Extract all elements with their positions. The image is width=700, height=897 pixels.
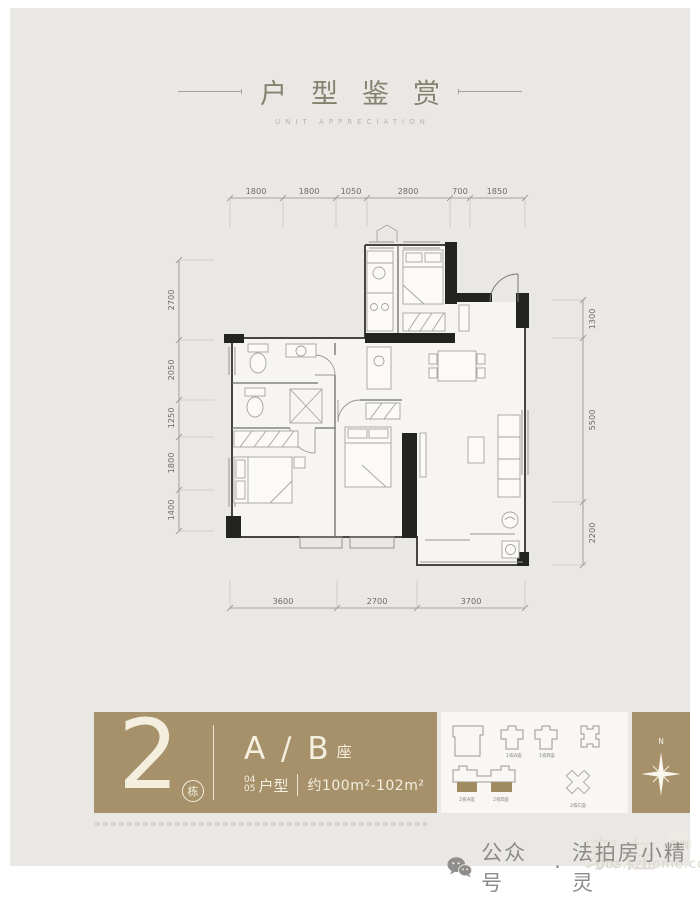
highlighted-buildings (457, 782, 512, 792)
block-name: A / B (244, 734, 332, 765)
dim-label: 5500 (587, 410, 597, 431)
area-range: 约100m²-102m² (307, 775, 424, 795)
entry-door (490, 274, 518, 302)
building-label: 1栋B座 (539, 752, 555, 759)
dim-label: 3600 (273, 596, 294, 606)
compass-icon: N (632, 712, 690, 813)
caption-account-name: 法拍房小精灵 (572, 837, 700, 897)
unit-info-block: 2 栋 A / B 座 04 05 户型 约100m²-102m² (94, 712, 437, 813)
wechat-icon (447, 855, 472, 879)
compass-block: N (632, 712, 690, 813)
site-plan-panel: 1栋A座 1栋B座 2栋A座 2栋B座 2栋C座 (441, 712, 628, 813)
floor-plan: 1800 1800 1050 2800 700 1850 2700 2050 1… (140, 175, 610, 635)
building-number: 2 (118, 707, 179, 805)
building-labels: 1栋A座 1栋B座 2栋A座 2栋B座 2栋C座 (459, 752, 586, 809)
unit-type-label: 户型 (258, 775, 288, 796)
page-subtitle: UNIT APPRECIATION (275, 118, 430, 126)
dim-label: 2700 (367, 596, 388, 606)
dim-label: 1300 (587, 309, 597, 330)
dim-label: 1400 (166, 500, 176, 521)
fine-print-line (95, 822, 427, 826)
dim-label: 2700 (166, 290, 176, 311)
dim-label: 1800 (166, 453, 176, 474)
footer-caption: 公众号 · 法拍房小精灵 (447, 837, 700, 897)
dim-label: 3700 (461, 596, 482, 606)
title-decor-line-left (178, 91, 242, 92)
dim-label: 1800 (299, 186, 320, 196)
unit-number-bottom: 05 (244, 785, 255, 794)
dim-label: 1800 (246, 186, 267, 196)
dim-label: 1850 (487, 186, 508, 196)
dim-label: 700 (452, 186, 468, 196)
building-suffix-badge: 栋 (182, 780, 204, 802)
dim-label: 2050 (166, 360, 176, 381)
info-band: 2 栋 A / B 座 04 05 户型 约100m²-102m² (94, 712, 690, 813)
page-title: 户型鉴赏 (260, 72, 464, 111)
caption-separator: · (554, 855, 563, 879)
compass-north-label: N (658, 737, 664, 746)
building-label: 2栋C座 (570, 802, 586, 809)
caption-prefix: 公众号 (481, 837, 545, 897)
band-divider (213, 725, 214, 800)
dim-label: 2200 (587, 523, 597, 544)
title-decor-line-right (458, 91, 522, 92)
building-label: 2栋A座 (459, 796, 475, 803)
building-label: 2栋B座 (493, 796, 509, 803)
header: 户型鉴赏 UNIT APPRECIATION (0, 72, 700, 126)
unit-divider (297, 774, 298, 796)
building-label: 1栋A座 (506, 752, 522, 759)
dim-label: 1050 (341, 186, 362, 196)
site-plan-diagram: 1栋A座 1栋B座 2栋A座 2栋B座 2栋C座 (441, 712, 628, 813)
dim-label: 2800 (398, 186, 419, 196)
block-suffix: 座 (337, 741, 352, 762)
dim-label: 1250 (166, 408, 176, 429)
